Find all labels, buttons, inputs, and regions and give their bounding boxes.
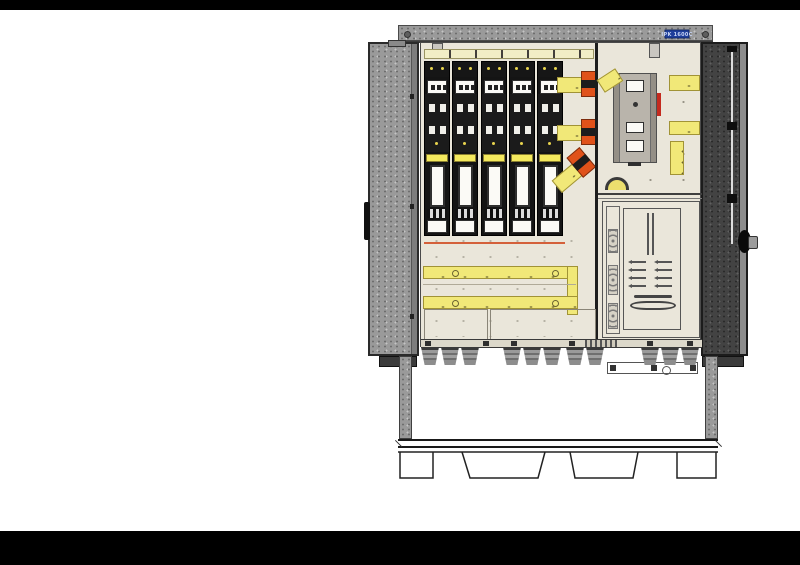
indicator-dot xyxy=(437,85,441,90)
fuse-slot xyxy=(497,104,503,112)
terminal-dash xyxy=(656,277,672,279)
terminal-dash xyxy=(630,285,646,287)
meter-box-keyhole xyxy=(633,102,638,107)
fuse-slot xyxy=(440,126,446,134)
top-bolt-right xyxy=(649,43,660,58)
right-door xyxy=(701,42,748,356)
rail-bolt xyxy=(425,341,431,346)
fuse-lower-window xyxy=(540,220,560,233)
meter-box-left-rail xyxy=(614,74,620,162)
indicator-dot xyxy=(500,85,504,90)
left-door xyxy=(368,42,419,356)
fuse-dot xyxy=(430,67,433,70)
beam-screw-left xyxy=(404,31,411,38)
cabinet-interior xyxy=(420,42,701,347)
right-separator-1 xyxy=(598,193,702,195)
inner-bar-small xyxy=(634,295,672,298)
busbar-horizontal-2 xyxy=(423,296,578,309)
hinge-knurl-3 xyxy=(608,303,618,329)
fuse-slot xyxy=(429,126,435,134)
fuse-lower-window xyxy=(484,220,504,233)
fuse-label-strip xyxy=(454,154,476,162)
left-door-hinge-bottom xyxy=(410,314,414,319)
compartment-hinge-column xyxy=(606,206,620,334)
fuse-slot xyxy=(457,104,463,112)
fuse-label-strip xyxy=(511,154,533,162)
indicator-dot xyxy=(431,85,435,90)
fuse-body xyxy=(425,94,449,152)
fuse-switch-column-4 xyxy=(509,61,535,236)
fuse-body xyxy=(510,94,534,152)
fuse-slot xyxy=(514,104,520,112)
fuse-slot xyxy=(525,126,531,134)
indicator-dot xyxy=(471,85,475,90)
indicator-dot xyxy=(494,85,498,90)
roof-beam: IPK 1600C xyxy=(398,25,713,41)
fuse-body xyxy=(453,94,477,152)
fuse-switch-column-2 xyxy=(452,61,478,236)
fuse-window xyxy=(430,165,445,207)
fuse-lower-window xyxy=(455,220,475,233)
fuse-vent-grille xyxy=(540,209,560,218)
fuse-lower-window xyxy=(427,220,447,233)
fuse-head xyxy=(510,62,534,77)
fuse-head xyxy=(453,62,477,77)
indicator-dot xyxy=(459,85,463,90)
indicator-dot xyxy=(488,85,492,90)
cable-gland xyxy=(586,347,604,365)
cable-gland xyxy=(543,347,561,365)
fuse-switch-column-1 xyxy=(424,61,450,236)
left-door-hinge-top xyxy=(410,94,414,99)
fuse-slot xyxy=(468,126,474,134)
fuse-dot xyxy=(469,67,472,70)
fuse-lower-window xyxy=(512,220,532,233)
rail-bolt xyxy=(647,341,653,346)
busbar-bolt-hole xyxy=(552,300,559,307)
fuse-label-strip xyxy=(483,154,505,162)
cable-gland xyxy=(441,347,459,365)
door-locking-rod xyxy=(731,52,733,244)
fuse-slot xyxy=(542,126,548,134)
left-leg xyxy=(399,356,412,439)
compartment-inner-panel xyxy=(623,208,681,330)
left-door-hinge-mid xyxy=(410,204,414,209)
fuse-label-strip xyxy=(426,154,448,162)
fuse-dot xyxy=(520,142,523,145)
foundation-decking-profile xyxy=(390,448,730,488)
meter-box xyxy=(613,73,657,163)
mid-seam-line xyxy=(423,284,576,285)
rod-guide-low xyxy=(727,194,737,203)
fuse-vent-grille xyxy=(455,209,475,218)
meter-box-right-rail xyxy=(650,74,656,162)
left-door-handle xyxy=(364,202,370,240)
rail-bolt xyxy=(511,341,517,346)
fuse-dot xyxy=(435,142,438,145)
type-nameplate: IPK 1600C xyxy=(665,30,690,39)
indicator-dot xyxy=(516,85,520,90)
clamp-link-bar xyxy=(557,125,583,141)
cable-gland xyxy=(523,347,541,365)
cable-clamp-assembly-3 xyxy=(549,149,601,195)
clamp-diagonal-group xyxy=(548,148,598,196)
fuse-dot xyxy=(543,67,546,70)
busbar-horizontal-1 xyxy=(423,266,577,279)
fuse-switch-column-3 xyxy=(481,61,507,236)
door-lock-nub xyxy=(748,236,758,249)
fuse-body xyxy=(482,94,506,152)
terminal-dash xyxy=(656,261,672,263)
cable-clamp-assembly-2 xyxy=(557,119,598,145)
letterbox-bottom xyxy=(0,531,800,565)
hinge-knurl-2 xyxy=(608,265,618,295)
fuse-dot xyxy=(515,67,518,70)
fuse-head xyxy=(425,62,449,77)
lower-panel-right xyxy=(490,309,596,340)
bar-bolt xyxy=(690,365,696,371)
compartment-ground-ring xyxy=(662,366,671,375)
fuse-slot xyxy=(468,104,474,112)
fuse-window xyxy=(458,165,473,207)
letterbox-top xyxy=(0,0,800,10)
fuse-indicator-band xyxy=(484,80,504,94)
meter-window-2 xyxy=(626,122,644,133)
fuse-indicator-band xyxy=(455,80,475,94)
terminal-dash-grid xyxy=(624,259,682,295)
switch-compartment xyxy=(602,201,700,338)
left-door-inner-edge xyxy=(411,44,417,354)
fuse-dot xyxy=(492,142,495,145)
fuse-slot xyxy=(497,126,503,134)
rod-guide-top xyxy=(727,46,737,52)
meter-window-1 xyxy=(626,80,644,92)
terminal-strip-1 xyxy=(669,75,700,91)
fuse-window xyxy=(487,165,502,207)
terminal-dash xyxy=(630,277,646,279)
fuse-head xyxy=(482,62,506,77)
fuse-dot xyxy=(463,142,466,145)
fuse-slot xyxy=(440,104,446,112)
indicator-dot xyxy=(528,85,532,90)
indicator-dot xyxy=(550,85,554,90)
fuse-slot xyxy=(553,104,559,112)
cable-gland xyxy=(421,347,439,365)
bar-bolt xyxy=(651,365,657,371)
terminal-dash xyxy=(656,269,672,271)
fuse-slot xyxy=(525,104,531,112)
fuse-indicator-band xyxy=(512,80,532,94)
fuse-dot xyxy=(548,142,551,145)
center-partition xyxy=(595,43,598,339)
fuse-slot xyxy=(486,104,492,112)
beam-screw-right xyxy=(702,31,709,38)
fuse-indicator-band xyxy=(427,80,447,94)
terminal-dash xyxy=(630,261,646,263)
fuse-vent-grille xyxy=(512,209,532,218)
inner-bar-lens xyxy=(630,301,676,310)
rail-bolt xyxy=(569,341,575,346)
red-indicator-stripe xyxy=(657,93,661,116)
rail-hatch-block xyxy=(585,340,617,347)
terminal-dash xyxy=(630,269,646,271)
base-plate xyxy=(398,439,718,448)
indicator-dot xyxy=(465,85,469,90)
rail-bolt xyxy=(687,341,693,346)
left-door-top-bracket xyxy=(388,40,406,47)
fuse-slot xyxy=(542,104,548,112)
fuse-vent-grille xyxy=(427,209,447,218)
meter-box-latch xyxy=(628,162,641,166)
fuse-dot xyxy=(554,67,557,70)
rod-guide-mid xyxy=(727,122,737,130)
clamp-link-bar xyxy=(557,77,583,93)
right-door-outer-edge xyxy=(739,44,746,354)
inner-vline-1 xyxy=(647,213,649,255)
terminal-strip-2 xyxy=(669,121,700,135)
fuse-vent-grille xyxy=(484,209,504,218)
busbar-bolt-hole xyxy=(452,300,459,307)
fuse-dot xyxy=(526,67,529,70)
indicator-dot xyxy=(544,85,548,90)
bar-bolt xyxy=(610,365,616,371)
cable-gland xyxy=(461,347,479,365)
terminal-strip-vertical xyxy=(670,141,684,175)
fuse-dot xyxy=(498,67,501,70)
fuse-slot xyxy=(429,104,435,112)
inner-vline-2 xyxy=(652,213,654,255)
terminal-dash xyxy=(656,285,672,287)
fuse-dot xyxy=(441,67,444,70)
fuse-dot xyxy=(487,67,490,70)
fuse-dot xyxy=(458,67,461,70)
right-separator-2 xyxy=(598,198,702,199)
engineering-drawing-canvas: IPK 1600C xyxy=(0,0,800,565)
busbar-bolt-hole xyxy=(552,270,559,277)
cable-clamp-assembly-1 xyxy=(557,71,598,97)
meter-window-3 xyxy=(626,140,644,152)
lower-panel-left xyxy=(424,309,488,340)
fuse-slot xyxy=(486,126,492,134)
cable-gland xyxy=(566,347,584,365)
indicator-dot xyxy=(522,85,526,90)
fuse-slot xyxy=(457,126,463,134)
hinge-knurl-1 xyxy=(608,229,618,253)
indicator-dot xyxy=(443,85,447,90)
rail-bolt xyxy=(483,341,489,346)
busbar-bolt-hole xyxy=(452,270,459,277)
bottom-rail xyxy=(421,339,702,348)
right-leg xyxy=(705,356,718,439)
fuse-slot xyxy=(514,126,520,134)
cable-gland xyxy=(503,347,521,365)
fuse-window xyxy=(515,165,530,207)
